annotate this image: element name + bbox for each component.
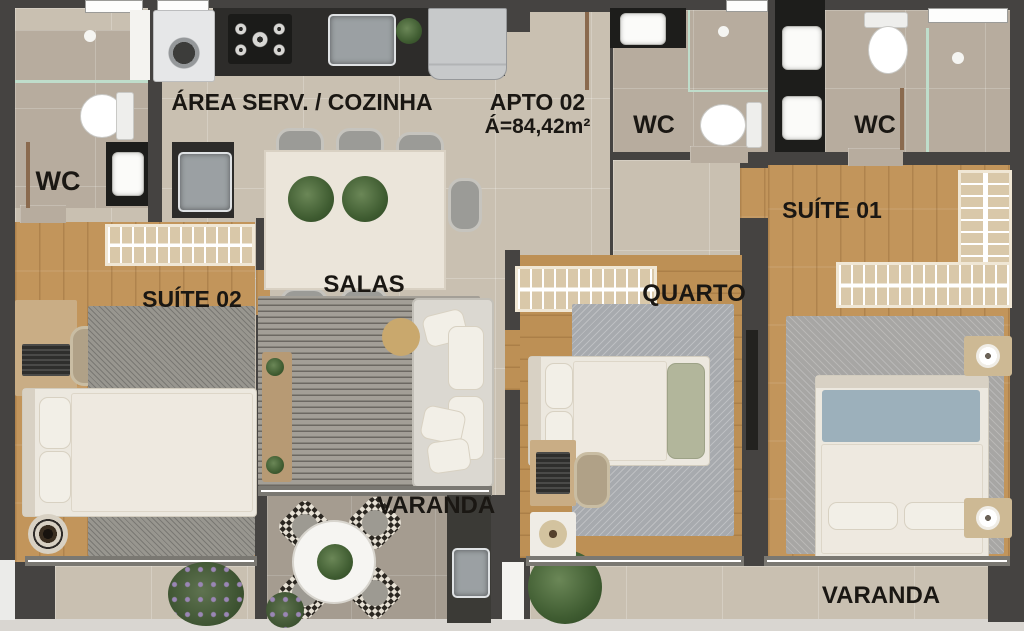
varanda-suite-label: VARANDA xyxy=(821,582,941,610)
plant-icon xyxy=(266,358,284,376)
toilet-tank-icon xyxy=(116,92,134,140)
plant-icon xyxy=(266,456,284,474)
outside-block-left xyxy=(0,560,15,620)
salas-label: SALAS xyxy=(314,271,414,299)
toilet-tank-icon xyxy=(746,102,762,148)
sofa xyxy=(412,298,494,488)
desk-chair-icon xyxy=(574,452,610,508)
wc-social-label: WC xyxy=(28,166,88,197)
entry-door-icon xyxy=(585,12,589,90)
plant-icon xyxy=(342,176,388,222)
shower-icon xyxy=(688,10,768,92)
shower-glass-icon xyxy=(15,80,148,83)
kitchen-sink-icon xyxy=(328,14,396,66)
window-icon xyxy=(928,8,1008,23)
suite-02-label: SUÍTE 02 xyxy=(132,286,252,312)
shower-head-icon xyxy=(718,26,729,37)
wall-top-entry xyxy=(530,0,612,12)
apartment-area: Á=84,42m² xyxy=(455,115,620,139)
shower-panel xyxy=(130,10,150,80)
bathroom-sink-icon xyxy=(112,152,144,196)
toilet-icon xyxy=(700,104,746,146)
wc-meio-label: WC xyxy=(624,111,684,140)
shower-head-icon xyxy=(84,30,96,42)
varanda-sink-icon xyxy=(452,548,490,598)
apartment-name: APTO 02 xyxy=(455,89,620,115)
vase-icon xyxy=(539,520,567,548)
side-table-icon xyxy=(382,318,420,356)
stove-icon xyxy=(228,14,292,64)
apartment-title: APTO 02 Á=84,42m² xyxy=(455,89,620,140)
toilet-icon xyxy=(868,26,908,74)
washing-machine-icon xyxy=(153,10,215,82)
sliding-door-icon xyxy=(526,556,744,566)
wardrobe-icon xyxy=(836,262,1012,308)
decor-flower-icon xyxy=(976,344,1000,368)
varanda-social-label: VARANDA xyxy=(377,492,493,520)
shower-glass-icon xyxy=(926,28,929,152)
dining-chair-icon xyxy=(448,178,482,232)
outside-strip xyxy=(0,619,1024,631)
sliding-door-icon xyxy=(764,556,1010,566)
decor-flower-icon xyxy=(976,506,1000,530)
suite-01-label: SUÍTE 01 xyxy=(767,197,897,223)
door-opening-suite01 xyxy=(740,168,768,218)
door-opening-wc-suite xyxy=(848,148,903,166)
double-bed xyxy=(815,375,989,560)
plant-icon xyxy=(396,18,422,44)
tv-panel xyxy=(746,330,758,450)
fridge-icon xyxy=(428,8,507,80)
door-opening-wc-meio xyxy=(690,146,748,163)
bathroom-sink-icon xyxy=(620,13,666,45)
laundry-tank-sink-icon xyxy=(178,152,232,212)
hall-floor xyxy=(613,160,740,255)
laptop-icon xyxy=(536,452,570,494)
quarto-label: QUARTO xyxy=(640,280,748,308)
wall-bottom-right xyxy=(988,566,1024,622)
plant-icon xyxy=(168,562,244,626)
shower-head-icon xyxy=(952,52,964,64)
wc-suite-label: WC xyxy=(845,111,905,140)
wardrobe-icon xyxy=(105,224,255,266)
bathroom-sink-icon xyxy=(782,96,822,140)
door-opening-quarto xyxy=(505,330,520,390)
varanda-door xyxy=(502,562,524,620)
plant-icon xyxy=(288,176,334,222)
area-servico-cozinha-label: ÁREA SERV. / COZINHA xyxy=(162,89,442,115)
plant-icon xyxy=(266,592,304,628)
bathroom-sink-icon xyxy=(782,26,822,70)
speaker-icon xyxy=(28,514,68,554)
floor-plan: ÁREA SERV. / COZINHA APTO 02 Á=84,42m² W… xyxy=(0,0,1024,631)
laptop-icon xyxy=(22,344,70,376)
plant-icon xyxy=(317,544,353,580)
double-bed xyxy=(22,388,257,517)
